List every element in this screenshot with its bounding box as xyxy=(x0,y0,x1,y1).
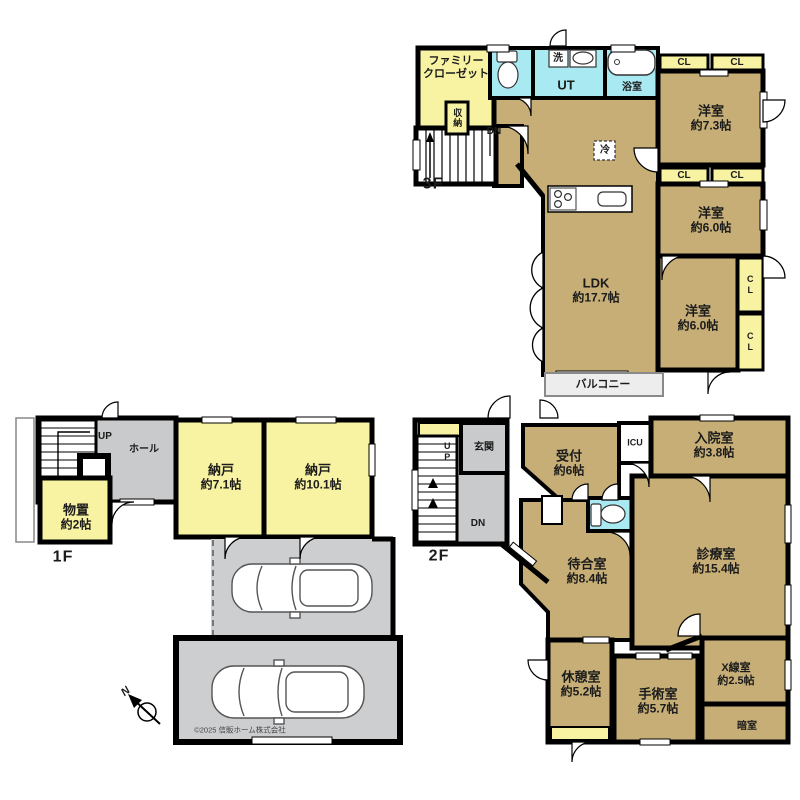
room-name: X線室 xyxy=(717,662,754,675)
room-size: 約6帖 xyxy=(554,464,585,478)
label-machiai: 待合室 約8.4帖 xyxy=(567,556,608,585)
label-up-1f: UP xyxy=(98,431,112,443)
sink-icon xyxy=(570,50,596,67)
label-balcony: バルコニー xyxy=(576,379,631,392)
room-name: 休憩室 xyxy=(561,669,602,684)
label-icu: ICU xyxy=(627,438,643,449)
bathtub-icon xyxy=(608,50,655,75)
label-copyright: ©2025 信販ホーム株式会社 xyxy=(194,727,286,736)
room-size: 約7.1帖 xyxy=(201,478,242,492)
stove-icon xyxy=(550,188,576,210)
room-name: 物置 xyxy=(61,502,92,517)
room-size: 約17.7帖 xyxy=(572,291,619,305)
label-ut: UT xyxy=(557,77,574,92)
label-nando-101: 納戸 約10.1帖 xyxy=(294,462,341,491)
label-cl-2: CL xyxy=(730,57,743,69)
label-uketsuke: 受付 約6帖 xyxy=(554,448,585,477)
room-size: 約6.0帖 xyxy=(691,221,732,235)
label-washer: 洗 xyxy=(553,53,563,65)
room-name: 診療室 xyxy=(692,546,739,561)
floor-plan-page: ファミリー クローゼット 洗 UT 浴室 CL CL CL CL 洋室 約7.3… xyxy=(0,0,800,800)
room-size: 約7.3帖 xyxy=(691,119,732,133)
label-family-closet: ファミリー クローゼット xyxy=(423,55,489,81)
bay-window-3f xyxy=(530,252,543,362)
room-size: 約5.2帖 xyxy=(561,685,602,699)
label-nyuin: 入院室 約3.8帖 xyxy=(694,430,735,459)
label-floor-2f: 2F xyxy=(429,548,450,567)
label-yoshitsu-60a: 洋室 約6.0帖 xyxy=(691,205,732,234)
room-size: 約2帖 xyxy=(61,518,92,532)
label-shinryo: 診療室 約15.4帖 xyxy=(692,546,739,575)
room-name: 納戸 xyxy=(201,462,242,477)
label-ldk: LDK 約17.7帖 xyxy=(572,275,619,304)
room-size: 約2.5帖 xyxy=(717,675,754,688)
room-name: 洋室 xyxy=(691,103,732,118)
label-dn-3f: DN xyxy=(487,126,501,138)
room-size: 約10.1帖 xyxy=(294,478,341,492)
room-size: 約3.8帖 xyxy=(694,446,735,460)
room-name: 洋室 xyxy=(678,303,719,318)
label-yoshitsu-60b: 洋室 約6.0帖 xyxy=(678,303,719,332)
label-floor-1f: 1F xyxy=(53,549,74,568)
room-name: 手術室 xyxy=(638,686,679,701)
floor-plan-3f xyxy=(0,0,800,800)
room-size: 約6.0帖 xyxy=(678,319,719,333)
room-size: 約8.4帖 xyxy=(567,572,608,586)
label-floor-3f: 3F xyxy=(423,176,444,195)
room-name: 受付 xyxy=(554,448,585,463)
room-name: 洋室 xyxy=(691,205,732,220)
room-name: 入院室 xyxy=(694,430,735,445)
room-size: 約5.7帖 xyxy=(638,702,679,716)
kitchen-sink-icon xyxy=(598,192,626,206)
room-name: 納戸 xyxy=(294,462,341,477)
label-cl-4: CL xyxy=(730,170,743,182)
label-shuno: 収納 xyxy=(452,108,463,128)
label-monooki: 物置 約2帖 xyxy=(61,502,92,531)
label-kyukei: 休憩室 約5.2帖 xyxy=(561,669,602,698)
label-hall: ホール xyxy=(129,444,159,456)
room-name: LDK xyxy=(572,275,619,290)
label-cl-v2: CL xyxy=(745,331,756,353)
label-yoshitsu-73: 洋室 約7.3帖 xyxy=(691,103,732,132)
label-fridge: 冷 xyxy=(600,145,610,157)
label-xsen: X線室 約2.5帖 xyxy=(717,662,754,688)
room-size: 約15.4帖 xyxy=(692,562,739,576)
label-anshitsu: 暗室 xyxy=(737,721,757,733)
label-cl-3: CL xyxy=(677,170,690,182)
label-genkan: 玄関 xyxy=(474,442,494,454)
toilet-icon xyxy=(497,51,518,88)
label-nando-71: 納戸 約7.1帖 xyxy=(201,462,242,491)
label-cl-1: CL xyxy=(677,57,690,69)
label-shujutsu: 手術室 約5.7帖 xyxy=(638,686,679,715)
room-name: 待合室 xyxy=(567,556,608,571)
label-dn-2f: DN xyxy=(471,518,485,530)
label-bath: 浴室 xyxy=(622,82,642,94)
kitchen-counter xyxy=(548,186,632,212)
label-up-2f: UP xyxy=(442,441,453,463)
label-cl-v1: CL xyxy=(745,274,756,296)
